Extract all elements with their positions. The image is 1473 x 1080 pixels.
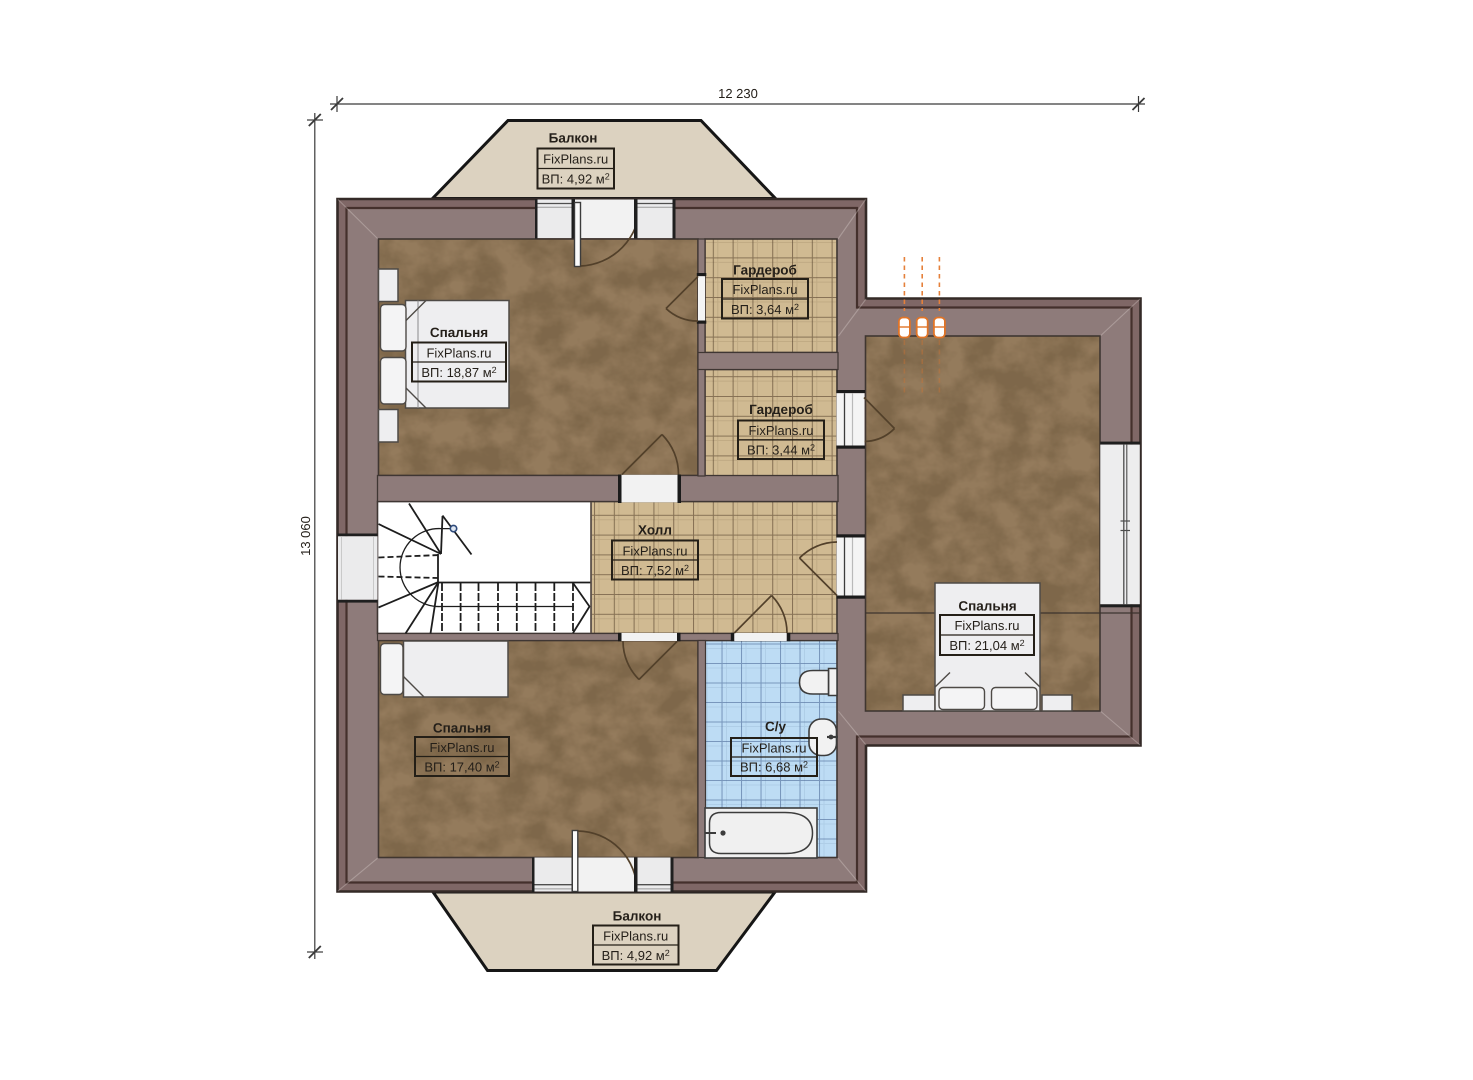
svg-text:12 230: 12 230 [718,86,758,101]
svg-text:Балкон: Балкон [613,909,662,924]
svg-text:Гардероб: Гардероб [733,263,797,278]
svg-text:Спальня: Спальня [430,325,488,340]
svg-text:ВП: 21,04 м2: ВП: 21,04 м2 [949,638,1024,653]
svg-text:ВП: 3,64 м2: ВП: 3,64 м2 [731,302,799,317]
svg-text:ВП: 7,52 м2: ВП: 7,52 м2 [621,563,689,578]
svg-text:ВП: 6,68 м2: ВП: 6,68 м2 [740,760,808,775]
svg-text:Балкон: Балкон [549,131,598,146]
svg-text:FixPlans.ru: FixPlans.ru [622,544,687,559]
svg-text:Спальня: Спальня [958,599,1016,614]
svg-text:Холл: Холл [638,523,672,538]
svg-text:FixPlans.ru: FixPlans.ru [426,346,491,361]
svg-text:ВП: 4,92 м2: ВП: 4,92 м2 [602,948,670,963]
svg-text:13 060: 13 060 [298,516,313,556]
svg-text:Гардероб: Гардероб [749,402,813,417]
svg-text:FixPlans.ru: FixPlans.ru [429,740,494,755]
svg-text:ВП: 4,92 м2: ВП: 4,92 м2 [542,172,610,187]
svg-text:ВП: 18,87 м2: ВП: 18,87 м2 [421,365,496,380]
svg-text:FixPlans.ru: FixPlans.ru [741,741,806,756]
svg-text:FixPlans.ru: FixPlans.ru [543,152,608,167]
svg-text:Спальня: Спальня [433,721,491,736]
svg-text:FixPlans.ru: FixPlans.ru [732,282,797,297]
svg-text:FixPlans.ru: FixPlans.ru [954,618,1019,633]
svg-text:FixPlans.ru: FixPlans.ru [748,423,813,438]
svg-text:FixPlans.ru: FixPlans.ru [603,929,668,944]
svg-text:ВП: 17,40 м2: ВП: 17,40 м2 [424,760,499,775]
svg-text:ВП: 3,44 м2: ВП: 3,44 м2 [747,443,815,458]
svg-text:С/у: С/у [765,719,787,734]
